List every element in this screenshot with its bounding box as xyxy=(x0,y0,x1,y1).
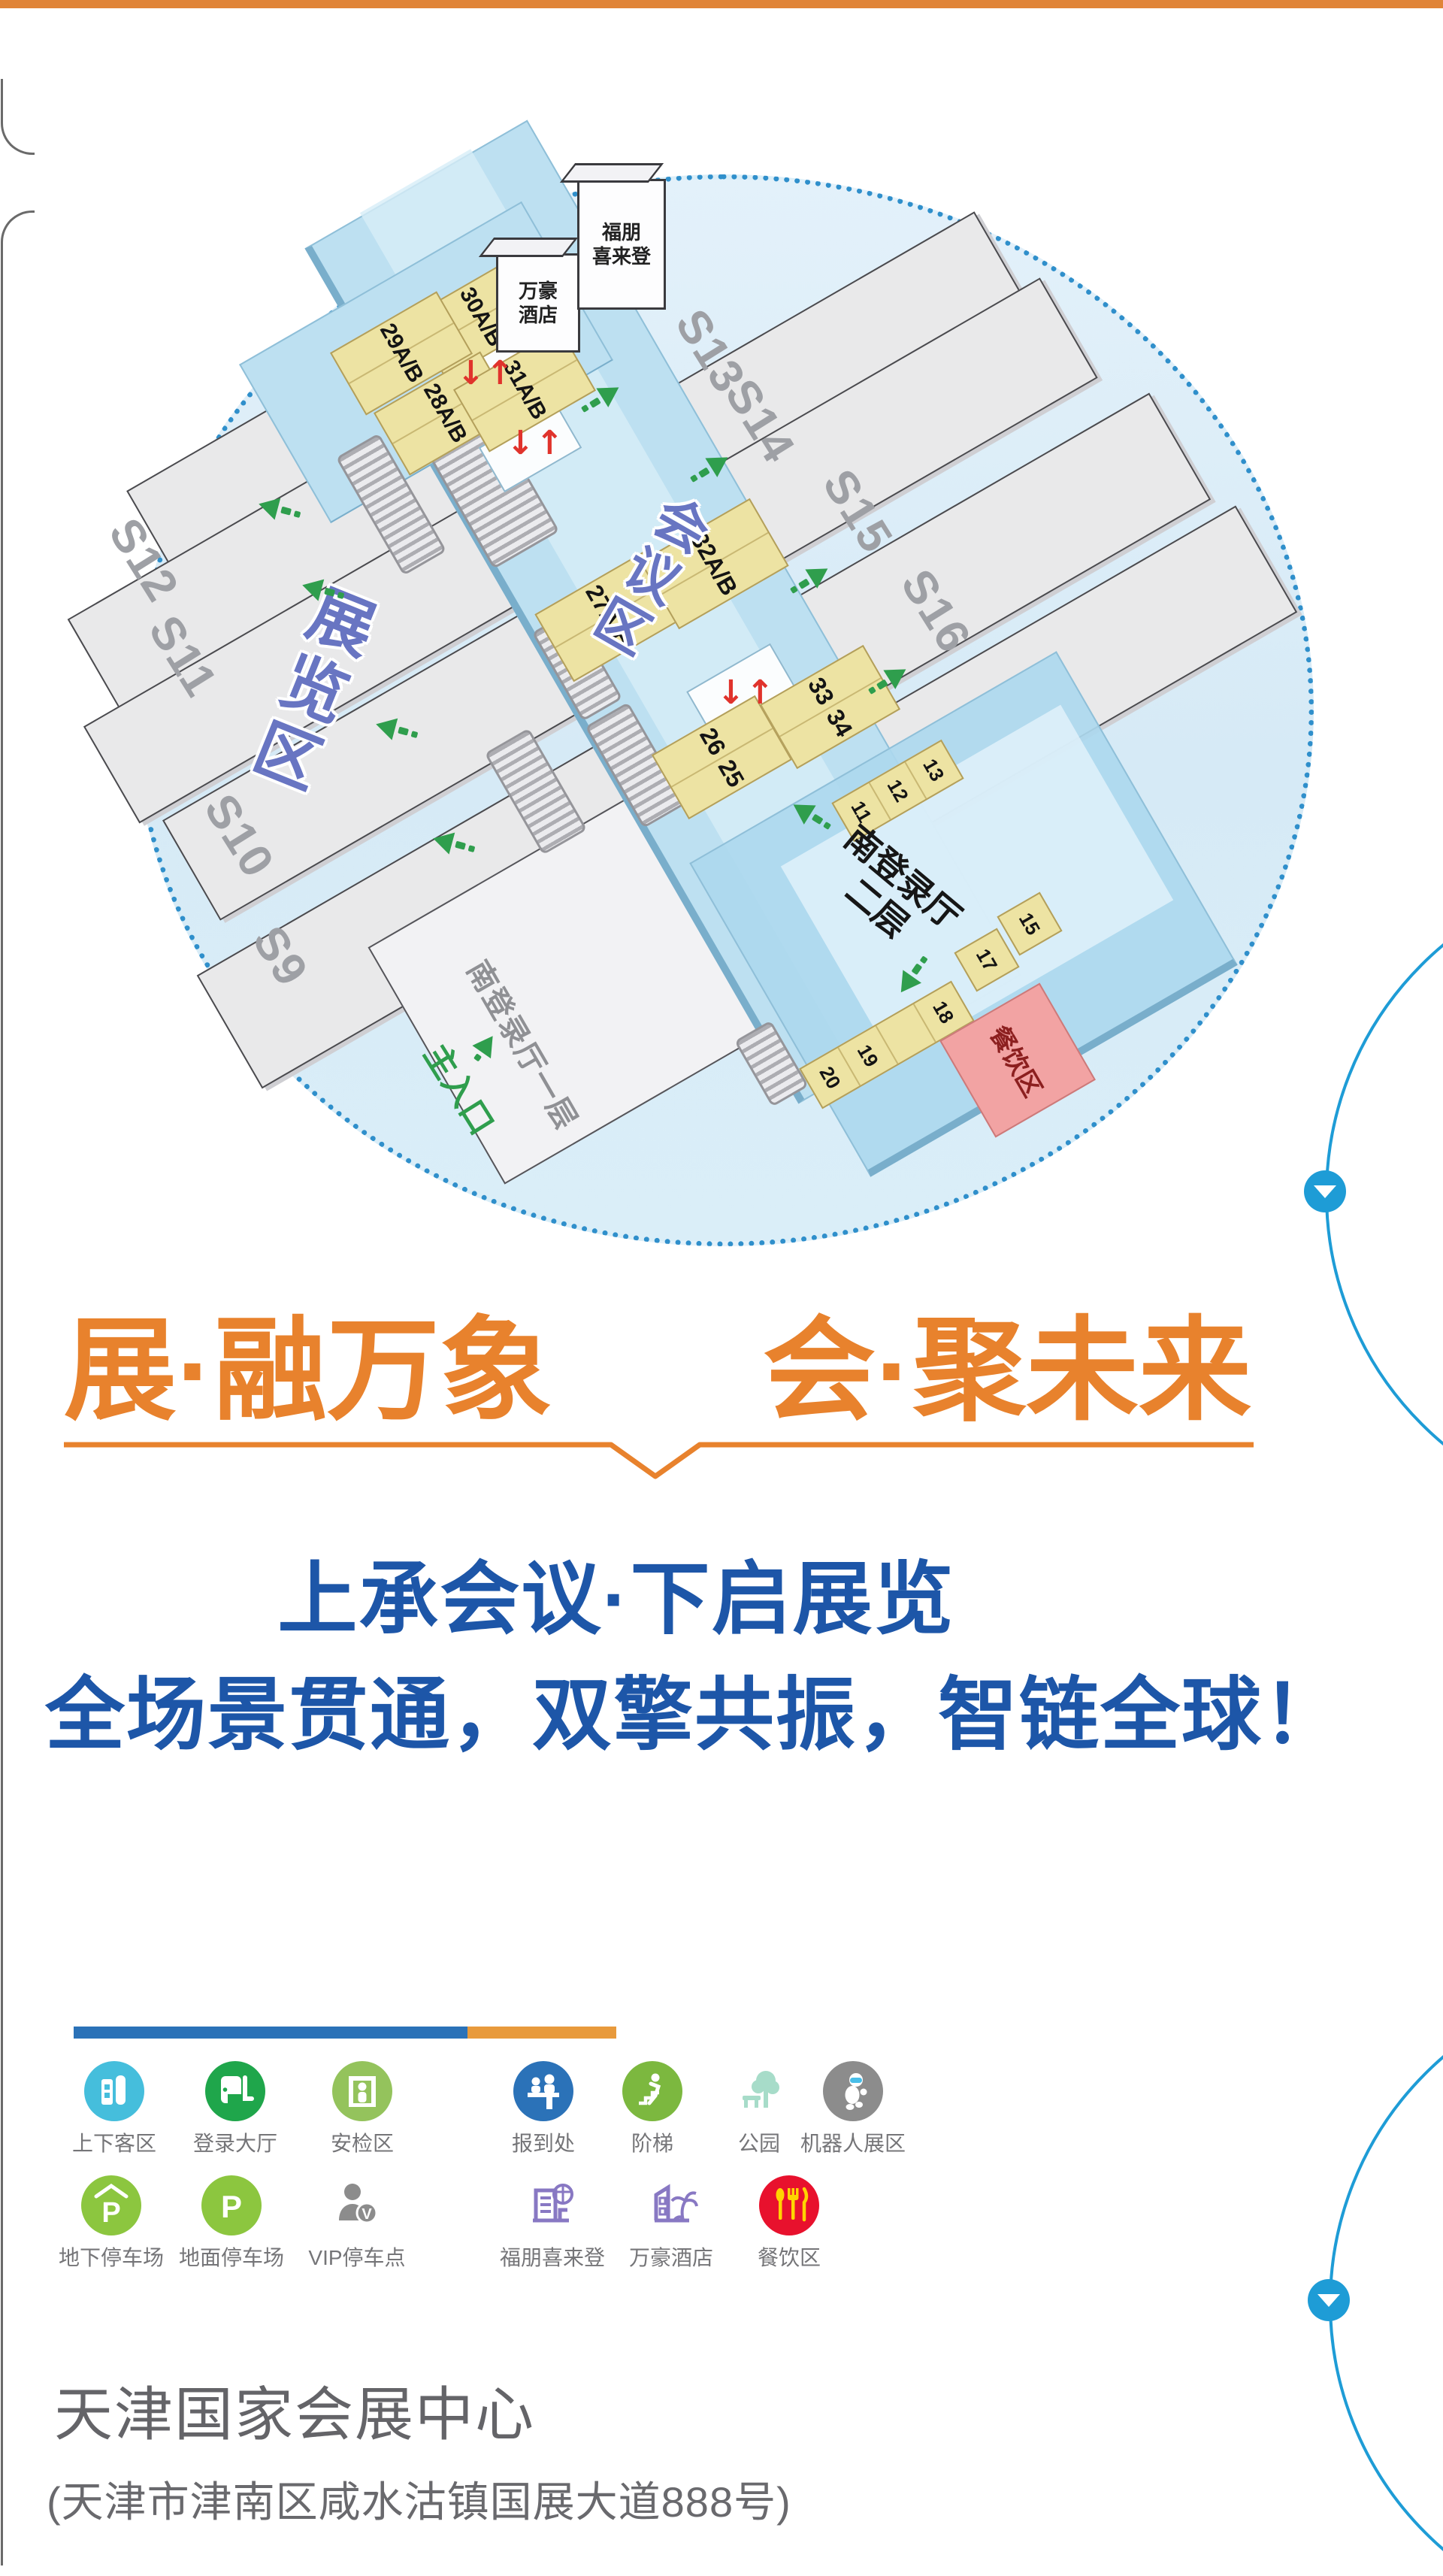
legend-item-security: 安检区 xyxy=(295,2061,430,2157)
card-corner-lower xyxy=(1,210,35,2565)
hotel-roof xyxy=(479,238,578,257)
stairs-icon xyxy=(622,2061,682,2121)
legend-item-marriott-hotel: 万豪酒店 xyxy=(604,2175,739,2272)
slogan-line2: 全场景贯通，双擎共振，智链全球！ xyxy=(45,1658,1187,1774)
hotel-four-points: 福朋喜来登 xyxy=(577,179,666,310)
checkin-desk-icon xyxy=(513,2061,573,2121)
promo-page: ↓↑ ↓↑ ↓↑ 30A/B 29A/B 28A/B 31A/B 27A/B 3… xyxy=(0,0,1443,2576)
chevron-down-icon xyxy=(1314,1185,1336,1198)
decor-arc xyxy=(1329,1977,1443,2576)
scroll-down-button[interactable] xyxy=(1304,1170,1346,1212)
park-icon xyxy=(729,2061,789,2121)
chevron-down-icon xyxy=(1317,2294,1340,2307)
legend-item-robot-zone: 机器人展区 xyxy=(785,2061,921,2157)
updown-arrows-icon: ↓↑ xyxy=(507,427,564,460)
legend-item-ground-parking: P 地面停车场 xyxy=(164,2175,299,2272)
slogan: 上承会议·下启展览 全场景贯通，双擎共振，智链全球！ xyxy=(45,1542,1187,1773)
four-points-hotel-icon xyxy=(522,2175,582,2235)
venue-address: (天津市津南区咸水沽镇国展大道888号) xyxy=(47,2469,791,2529)
legend-accent-bar xyxy=(74,2027,616,2039)
underground-parking-icon: P xyxy=(81,2175,141,2235)
svg-text:P: P xyxy=(101,2197,120,2229)
top-accent-bar xyxy=(0,0,1443,8)
legend-item-dining: 餐饮区 xyxy=(721,2175,857,2272)
dining-icon xyxy=(759,2175,819,2235)
hotel-marriott: 万豪酒店 xyxy=(496,253,580,353)
legend-item-four-points-hotel: 福朋喜来登 xyxy=(485,2175,620,2272)
headline-left: 展·融万象 xyxy=(64,1314,552,1427)
login-hall-icon xyxy=(205,2061,265,2121)
headline-right: 会·聚未来 xyxy=(763,1314,1251,1427)
legend-item-vip-parking: V VIP停车点 xyxy=(289,2175,425,2272)
slogan-line1: 上承会议·下启展览 xyxy=(45,1542,1187,1658)
legend-item-login-hall: 登录大厅 xyxy=(168,2061,303,2157)
headline: 展·融万象 会·聚未来 xyxy=(64,1314,1251,1427)
svg-text:V: V xyxy=(362,2206,372,2223)
robot-icon xyxy=(823,2061,883,2121)
marriott-hotel-icon xyxy=(641,2175,701,2235)
updown-arrows-icon: ↓↑ xyxy=(457,357,514,390)
passenger-zone-icon xyxy=(84,2061,144,2121)
headline-divider xyxy=(64,1440,1255,1482)
scroll-down-button[interactable] xyxy=(1308,2279,1350,2321)
svg-text:P: P xyxy=(221,2189,242,2224)
ground-parking-icon: P xyxy=(201,2175,262,2235)
legend-item-passenger-zone: 上下客区 xyxy=(47,2061,182,2157)
security-check-icon xyxy=(332,2061,392,2121)
updown-arrows-icon: ↓↑ xyxy=(717,677,774,710)
vip-parking-icon: V xyxy=(327,2175,387,2235)
legend-item-underground-parking: P 地下停车场 xyxy=(44,2175,179,2272)
venue-name: 天津国家会展中心 xyxy=(54,2368,535,2452)
card-corner-upper xyxy=(1,79,35,155)
hotel-roof xyxy=(560,163,664,183)
